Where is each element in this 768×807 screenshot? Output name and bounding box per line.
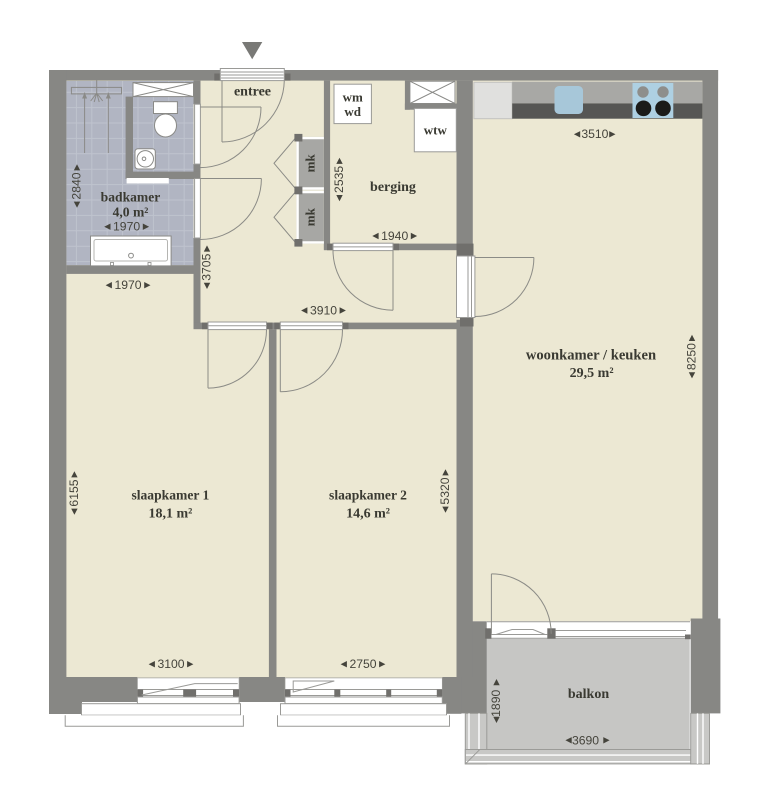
svg-text:29,5 m²: 29,5 m² bbox=[570, 366, 614, 381]
svg-text:6155: 6155 bbox=[67, 479, 81, 506]
svg-text:14,6 m²: 14,6 m² bbox=[346, 507, 390, 522]
svg-text:5320: 5320 bbox=[438, 477, 452, 504]
svg-text:1890: 1890 bbox=[489, 690, 503, 717]
svg-text:balkon: balkon bbox=[568, 687, 609, 702]
svg-text:badkamer: badkamer bbox=[101, 190, 161, 205]
svg-text:berging: berging bbox=[370, 180, 416, 195]
svg-text:2750: 2750 bbox=[349, 657, 376, 671]
svg-text:slaapkamer 2: slaapkamer 2 bbox=[329, 488, 407, 503]
svg-text:4,0 m²: 4,0 m² bbox=[113, 205, 149, 220]
svg-text:8250: 8250 bbox=[685, 343, 699, 370]
svg-text:3100: 3100 bbox=[157, 657, 184, 671]
svg-text:wtw: wtw bbox=[424, 123, 448, 138]
svg-text:3910: 3910 bbox=[310, 303, 337, 317]
svg-text:mk: mk bbox=[303, 154, 318, 173]
svg-text:3705: 3705 bbox=[200, 253, 214, 280]
svg-text:1970: 1970 bbox=[113, 220, 140, 234]
svg-text:slaapkamer 1: slaapkamer 1 bbox=[131, 488, 209, 503]
svg-text:wd: wd bbox=[344, 104, 361, 119]
svg-text:2535: 2535 bbox=[332, 166, 346, 193]
svg-text:18,1 m²: 18,1 m² bbox=[148, 507, 192, 522]
svg-text:wm: wm bbox=[343, 90, 363, 105]
svg-text:mk: mk bbox=[303, 207, 318, 226]
svg-text:1940: 1940 bbox=[381, 229, 408, 243]
svg-text:1970: 1970 bbox=[114, 278, 141, 292]
svg-text:entree: entree bbox=[234, 85, 271, 100]
svg-text:2840: 2840 bbox=[70, 172, 84, 199]
svg-text:3510: 3510 bbox=[581, 127, 608, 141]
svg-text:3690: 3690 bbox=[572, 733, 599, 747]
svg-text:woonkamer / keuken: woonkamer / keuken bbox=[526, 348, 656, 364]
